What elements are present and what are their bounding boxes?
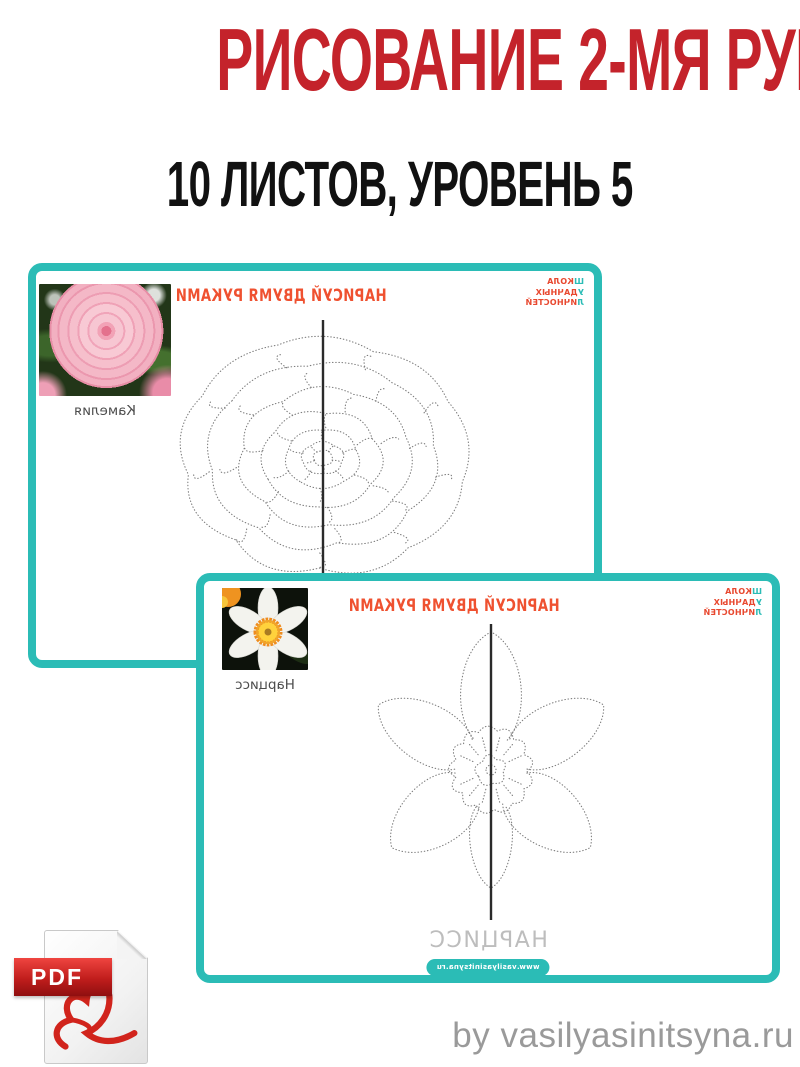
- reference-photo-block: Нарцисс: [222, 588, 308, 693]
- worksheet-mirrored-content: ШКОЛА УДАЧНЫХ ЛИЧНОСТЕЙ НАРИСУЙ ДВУМЯ РУ…: [204, 581, 772, 975]
- page-fold-corner-icon: [117, 931, 147, 959]
- promo-poster: РИСОВАНИЕ 2-МЯ РУКАМИ 10 ЛИСТОВ, УРОВЕНЬ…: [0, 0, 800, 1067]
- page-subtitle: 10 ЛИСТОВ, УРОВЕНЬ 5: [167, 152, 633, 216]
- header: РИСОВАНИЕ 2-МЯ РУКАМИ: [0, 16, 800, 104]
- camellia-tracing-outline: [158, 316, 488, 616]
- camellia-photo: [39, 284, 171, 396]
- worksheet-heading: НАРИСУЙ ДВУМЯ РУКАМИ: [175, 286, 386, 306]
- pdf-banner-label: PDF: [14, 964, 83, 991]
- camellia-photo-caption: Камелия: [39, 403, 171, 419]
- subheader: 10 ЛИСТОВ, УРОВЕНЬ 5: [0, 152, 800, 216]
- pdf-banner: PDF: [14, 958, 112, 996]
- school-logo-line: ЛИЧНОСТЕЙ: [703, 608, 762, 619]
- narcissus-photo-caption: Нарцисс: [222, 677, 308, 693]
- worksheet-card-narcissus: ШКОЛА УДАЧНЫХ ЛИЧНОСТЕЙ НАРИСУЙ ДВУМЯ РУ…: [196, 573, 780, 983]
- reference-photo-block: Камелия: [39, 284, 171, 419]
- school-logo: ШКОЛА УДАЧНЫХ ЛИЧНОСТЕЙ: [525, 277, 584, 309]
- school-logo: ШКОЛА УДАЧНЫХ ЛИЧНОСТЕЙ: [703, 587, 762, 619]
- school-logo-line: ШКОЛА: [703, 587, 762, 598]
- worksheet-flower-name: НАРЦИСС: [204, 928, 772, 953]
- school-logo-line: ЛИЧНОСТЕЙ: [525, 298, 584, 309]
- school-logo-line: УДАЧНЫХ: [525, 288, 584, 299]
- website-pill: www.vasilyasinitsyna.ru: [427, 959, 550, 976]
- school-logo-line: УДАЧНЫХ: [703, 598, 762, 609]
- page-title: РИСОВАНИЕ 2-МЯ РУКАМИ: [216, 16, 800, 104]
- pdf-file-icon: PDF: [14, 924, 166, 1066]
- school-logo-line: ШКОЛА: [525, 277, 584, 288]
- narcissus-tracing-outline: [351, 618, 631, 928]
- narcissus-photo-flower: [222, 588, 308, 670]
- worksheet-heading: НАРИСУЙ ДВУМЯ РУКАМИ: [348, 596, 559, 616]
- credit-byline: by vasilyasinitsyna.ru: [452, 1016, 794, 1056]
- narcissus-photo: [222, 588, 308, 670]
